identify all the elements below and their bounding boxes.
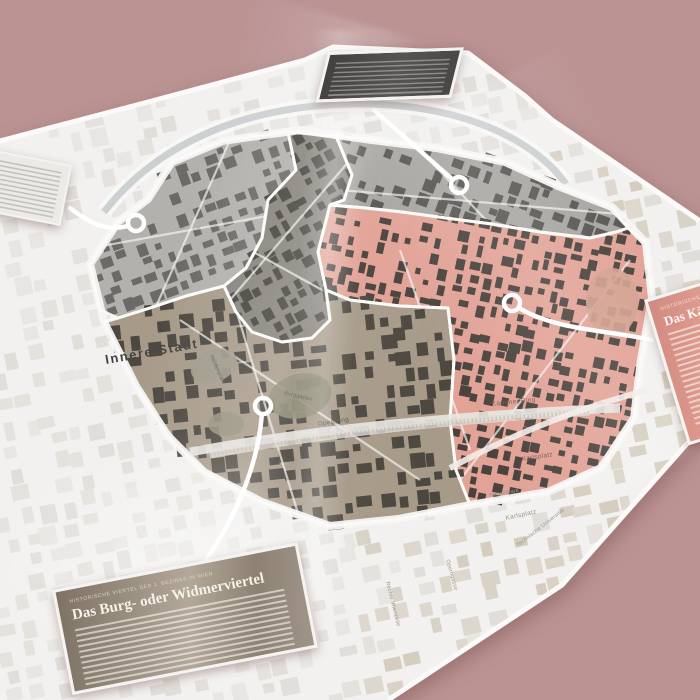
card-text-lines [328, 59, 450, 97]
info-card-top-dark [315, 47, 464, 102]
photo-of-vienna-district-map: Innere Stadt Opernring Kärntner Ring Kar… [0, 0, 700, 700]
card-text-lines [0, 157, 62, 220]
